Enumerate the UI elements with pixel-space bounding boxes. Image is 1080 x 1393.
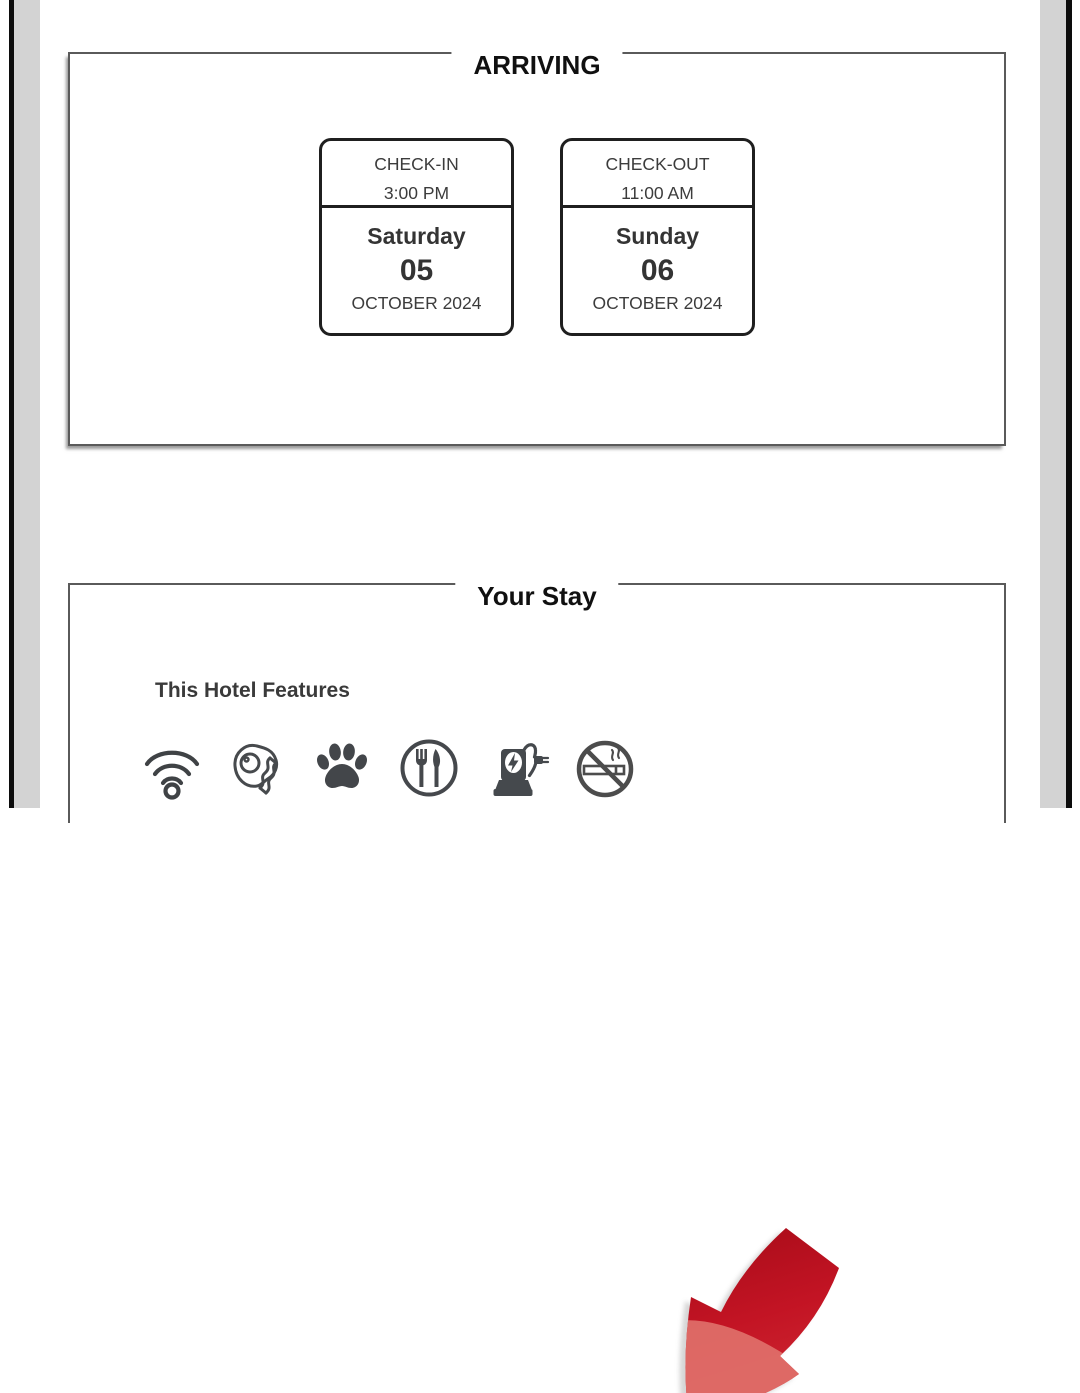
no-smoking-icon bbox=[574, 733, 638, 803]
restaurant-icon bbox=[397, 733, 461, 803]
checkout-day-number: 06 bbox=[563, 254, 752, 287]
red-arrow-icon bbox=[653, 1223, 843, 1393]
checkout-card-body: Sunday 06 OCTOBER 2024 bbox=[563, 208, 752, 319]
feature-pets bbox=[310, 733, 374, 803]
red-arrow-annotation bbox=[653, 1223, 843, 1393]
checkout-month-year: OCTOBER 2024 bbox=[563, 287, 752, 319]
arriving-title: ARRIVING bbox=[451, 52, 622, 79]
features-heading: This Hotel Features bbox=[155, 679, 350, 703]
checkout-day-name: Sunday bbox=[563, 218, 752, 254]
checkin-month-year: OCTOBER 2024 bbox=[322, 287, 511, 319]
wifi-icon bbox=[140, 733, 204, 803]
feature-ev-charging bbox=[486, 733, 550, 803]
checkout-time: 11:00 AM bbox=[563, 179, 752, 208]
date-cards-row: CHECK-IN 3:00 PM Saturday 05 OCTOBER 202… bbox=[70, 138, 1004, 336]
page-edge-gray-left bbox=[14, 0, 40, 808]
checkin-day-name: Saturday bbox=[322, 218, 511, 254]
checkin-day-number: 05 bbox=[322, 254, 511, 287]
checkin-card: CHECK-IN 3:00 PM Saturday 05 OCTOBER 202… bbox=[319, 138, 514, 336]
feature-restaurant bbox=[397, 733, 461, 803]
checkout-card: CHECK-OUT 11:00 AM Sunday 06 OCTOBER 202… bbox=[560, 138, 755, 336]
feature-no-smoking bbox=[574, 733, 638, 803]
page-edge-gray-right bbox=[1040, 0, 1066, 808]
feature-breakfast bbox=[224, 733, 288, 803]
checkin-card-header: CHECK-IN 3:00 PM bbox=[322, 141, 511, 208]
checkout-card-header: CHECK-OUT 11:00 AM bbox=[563, 141, 752, 208]
checkin-label: CHECK-IN bbox=[322, 150, 511, 179]
ev-charging-icon bbox=[486, 733, 550, 803]
arriving-section: ARRIVING CHECK-IN 3:00 PM Saturday 05 OC… bbox=[68, 52, 1006, 446]
page-edge-black-right bbox=[1066, 0, 1072, 808]
checkin-card-body: Saturday 05 OCTOBER 2024 bbox=[322, 208, 511, 319]
checkin-time: 3:00 PM bbox=[322, 179, 511, 208]
feature-wifi bbox=[140, 733, 204, 803]
your-stay-title: Your Stay bbox=[455, 583, 618, 610]
paw-icon bbox=[310, 733, 374, 803]
checkout-label: CHECK-OUT bbox=[563, 150, 752, 179]
breakfast-icon bbox=[224, 733, 288, 803]
your-stay-section: Your Stay This Hotel Features bbox=[68, 583, 1006, 823]
